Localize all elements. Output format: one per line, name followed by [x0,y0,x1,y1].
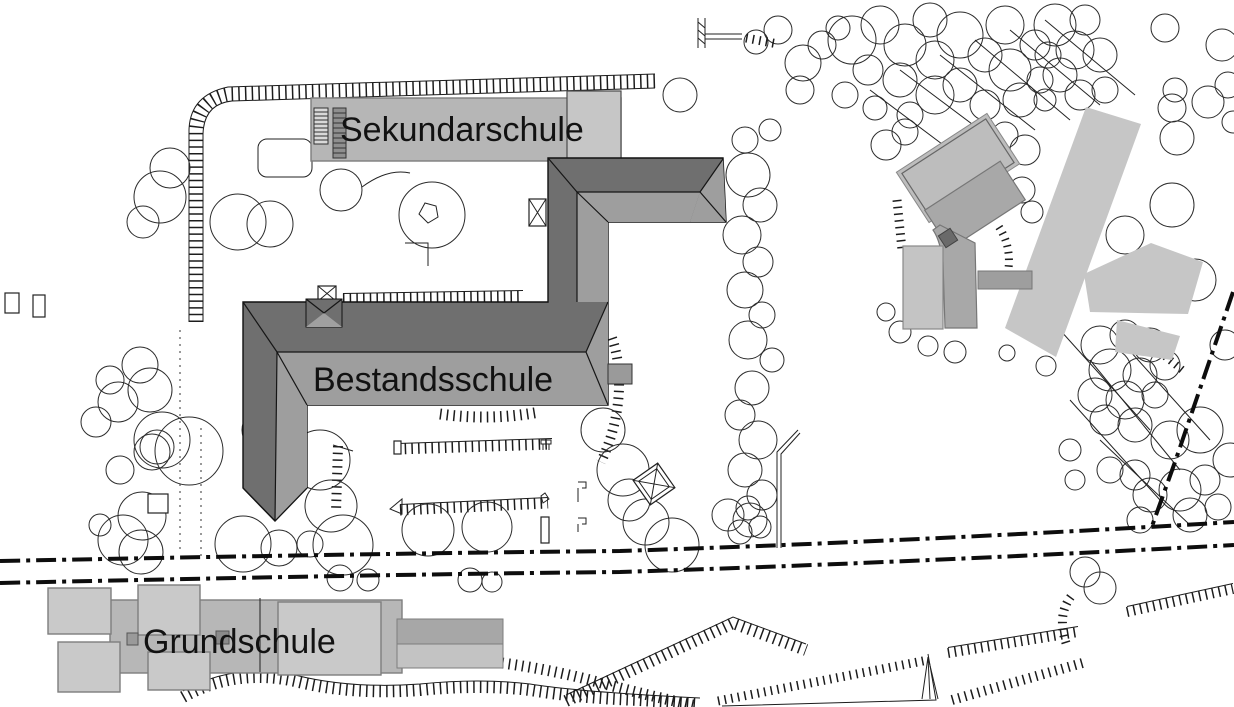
label-sekundarschule: Sekundarschule [340,111,584,149]
grundschule-bar-dark [397,619,503,644]
site-plan: Sekundarschule Bestandsschule Grundschul… [0,0,1234,707]
small-structure [33,295,45,317]
grundschule-block [48,588,111,634]
label-grundschule: Grundschule [143,623,336,661]
small-structure [5,293,19,313]
grundschule-block [58,642,120,692]
connector-bar [978,271,1032,289]
east-stub [608,364,632,384]
shaft-symbol [529,199,546,226]
label-bestandsschule: Bestandsschule [313,361,553,399]
grundschule-bar-light [397,644,503,668]
entrance-porch [306,299,342,327]
